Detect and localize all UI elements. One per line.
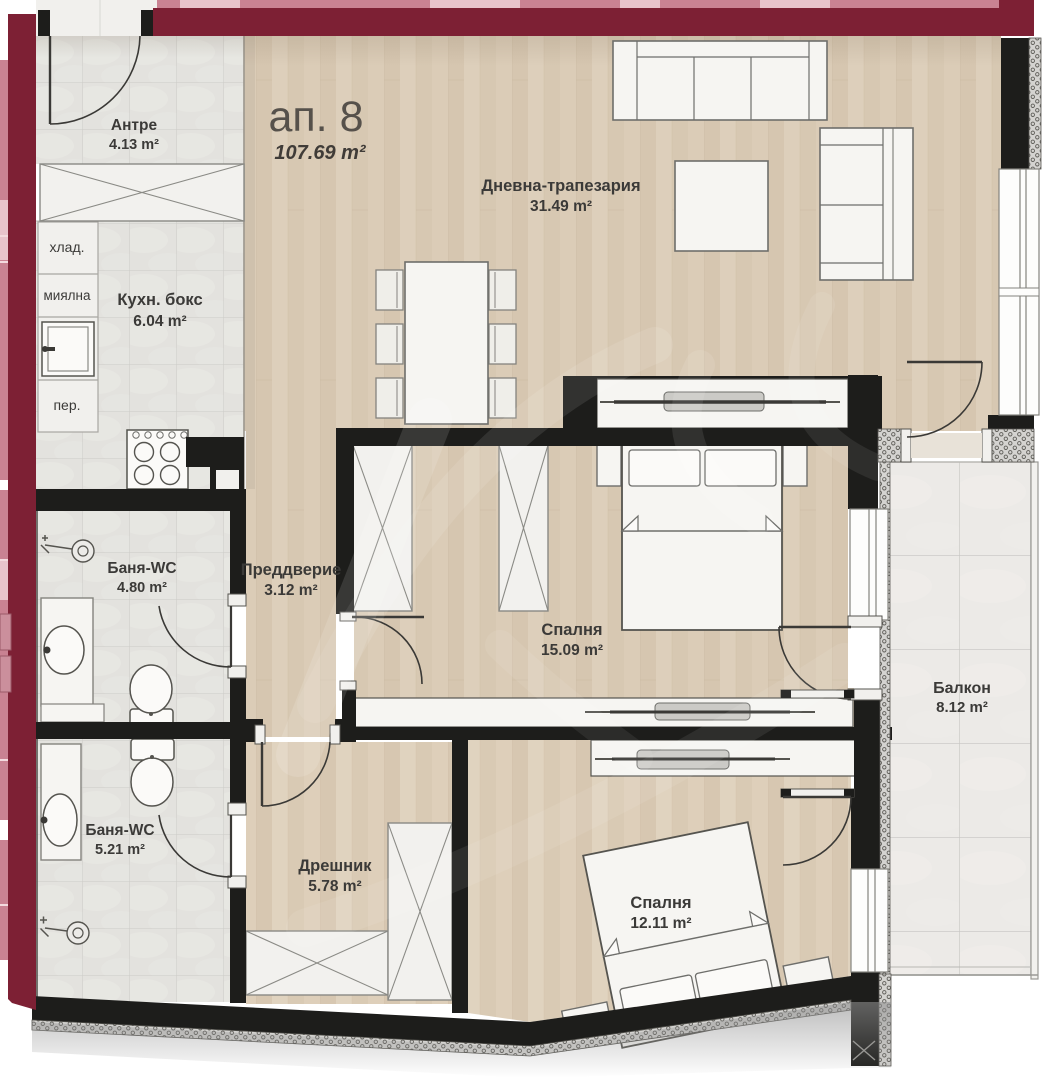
svg-text:5.78 m²: 5.78 m² — [308, 878, 361, 895]
svg-text:Балкон: Балкон — [933, 680, 991, 697]
svg-text:4.80 m²: 4.80 m² — [117, 580, 167, 596]
svg-text:Спалня: Спалня — [630, 894, 691, 912]
svg-text:Антре: Антре — [111, 117, 158, 134]
svg-text:31.49 m²: 31.49 m² — [530, 198, 592, 215]
svg-text:107.69 m²: 107.69 m² — [274, 142, 367, 164]
svg-text:8.12 m²: 8.12 m² — [936, 699, 988, 716]
svg-text:12.11 m²: 12.11 m² — [630, 915, 691, 932]
svg-text:Дрешник: Дрешник — [298, 857, 372, 875]
svg-text:15.09 m²: 15.09 m² — [541, 642, 603, 659]
svg-text:хлад.: хлад. — [49, 239, 84, 255]
svg-text:4.13 m²: 4.13 m² — [109, 137, 159, 153]
svg-text:Преддверие: Преддверие — [241, 561, 342, 579]
svg-text:5.21 m²: 5.21 m² — [95, 842, 145, 858]
svg-text:Спалня: Спалня — [541, 621, 602, 639]
svg-text:Баня-WC: Баня-WC — [107, 560, 176, 577]
svg-text:миялна: миялна — [44, 288, 91, 303]
svg-text:6.04 m²: 6.04 m² — [133, 313, 186, 330]
svg-text:пер.: пер. — [53, 397, 80, 413]
svg-text:3.12 m²: 3.12 m² — [264, 582, 317, 599]
svg-text:Кухн. бокс: Кухн. бокс — [117, 291, 202, 309]
svg-text:Дневна-трапезария: Дневна-трапезария — [481, 177, 640, 195]
svg-text:Баня-WC: Баня-WC — [85, 822, 154, 839]
svg-text:ап. 8: ап. 8 — [268, 93, 363, 141]
